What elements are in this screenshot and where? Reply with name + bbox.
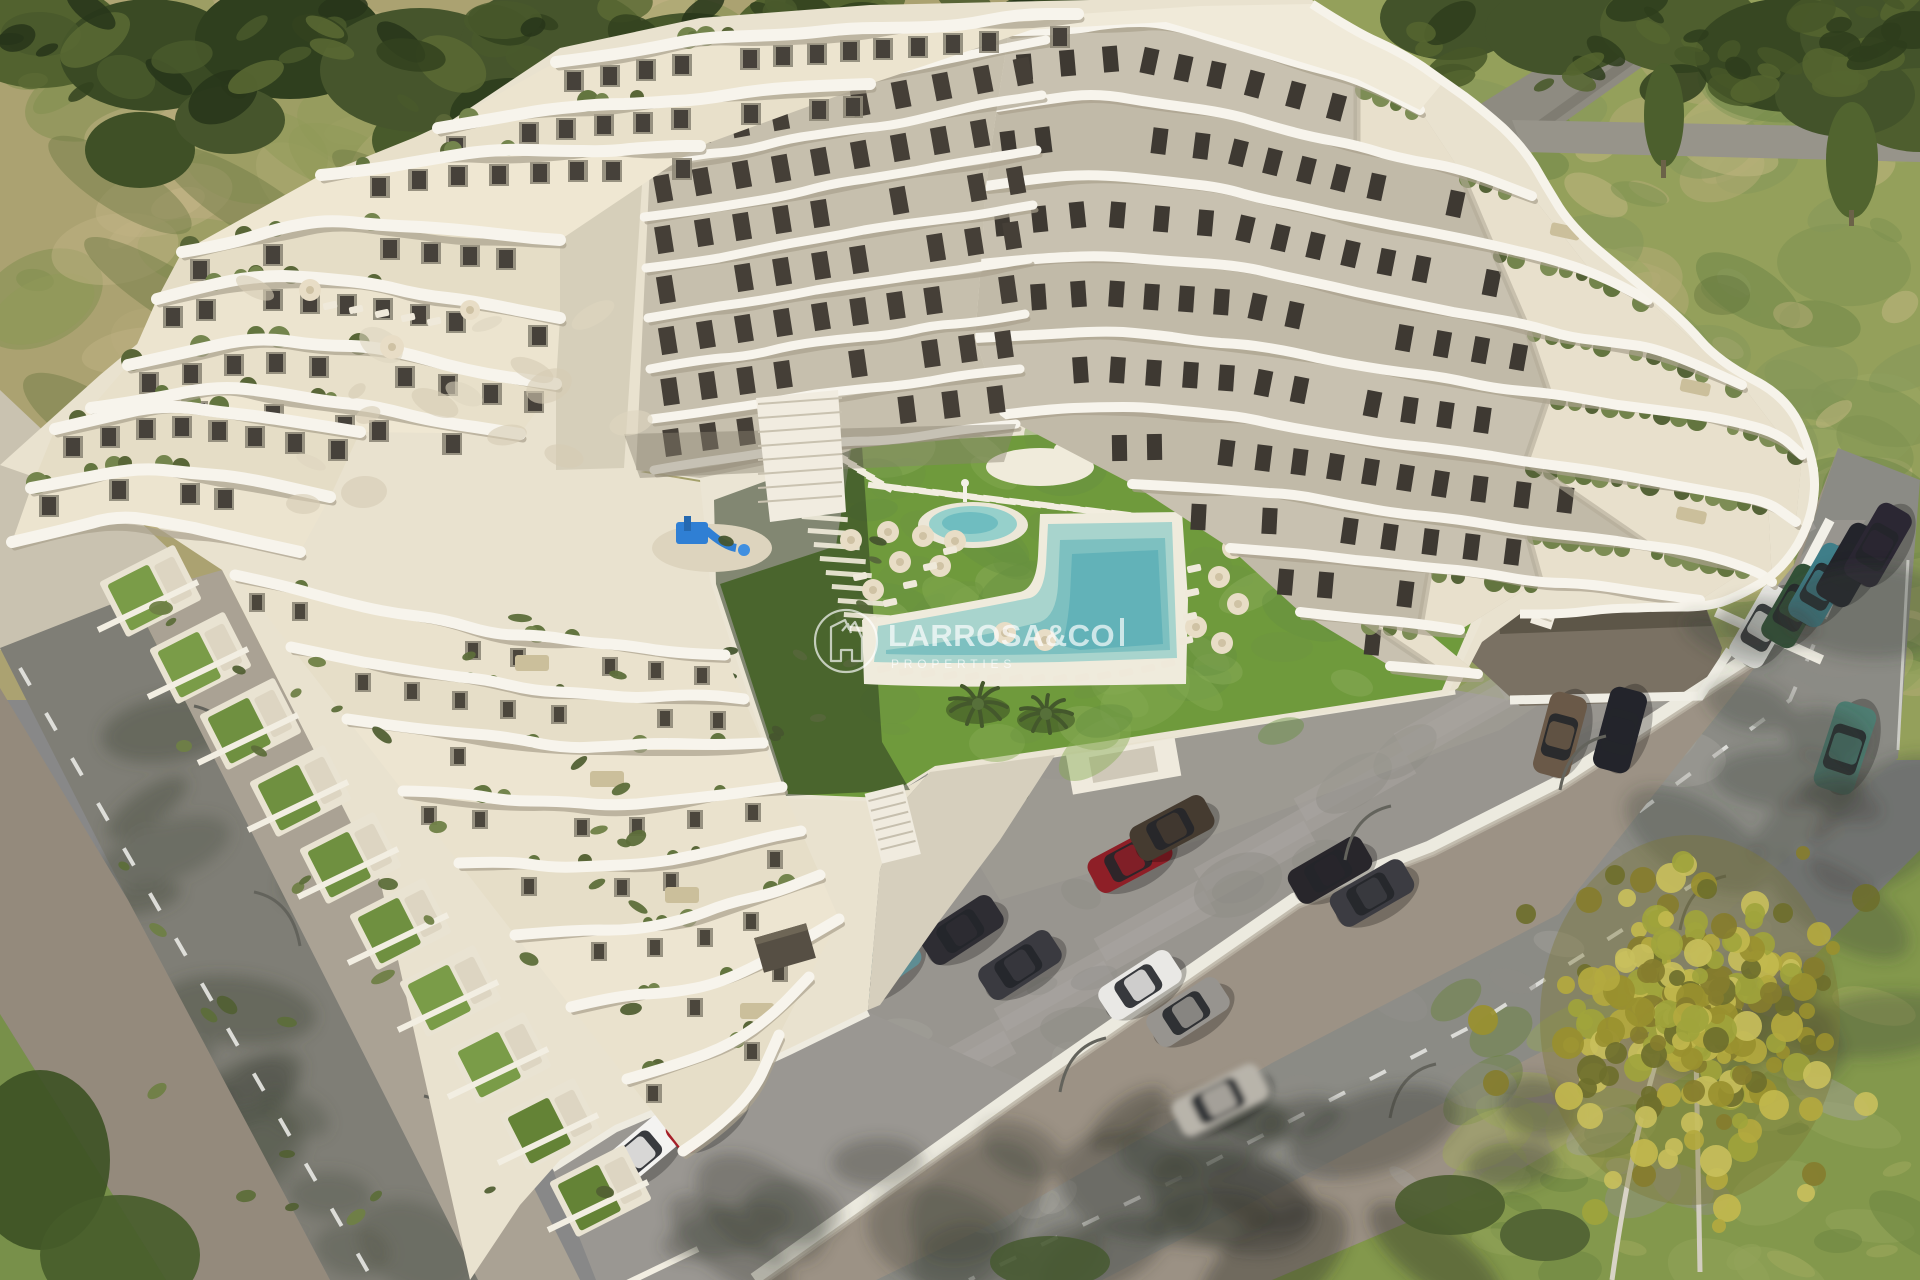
svg-text:LARROSA&CO: LARROSA&CO xyxy=(888,618,1115,653)
svg-text:PROPERTIES: PROPERTIES xyxy=(891,657,1016,671)
